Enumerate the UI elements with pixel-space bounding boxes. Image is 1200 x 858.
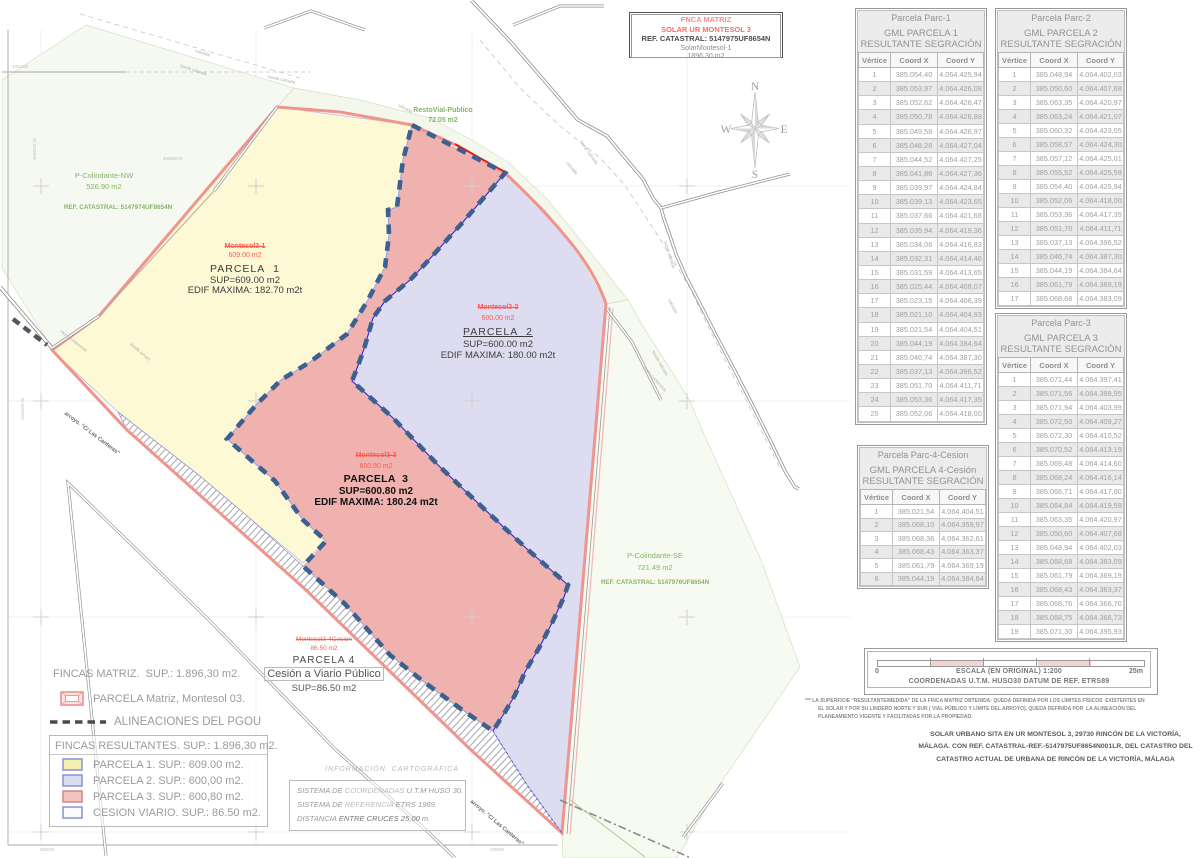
svg-text:4064425: 4064425 <box>12 64 29 69</box>
svg-text:W: W <box>721 124 732 136</box>
svg-text:385025: 385025 <box>40 847 55 852</box>
svg-text:385050.00: 385050.00 <box>163 156 183 161</box>
svg-text:N: N <box>751 81 760 93</box>
svg-text:4064400.00: 4064400.00 <box>20 397 25 420</box>
svg-text:4064425.00: 4064425.00 <box>32 137 37 160</box>
svg-text:385050: 385050 <box>490 847 505 852</box>
svg-text:S: S <box>752 169 758 181</box>
svg-text:E: E <box>780 124 787 136</box>
